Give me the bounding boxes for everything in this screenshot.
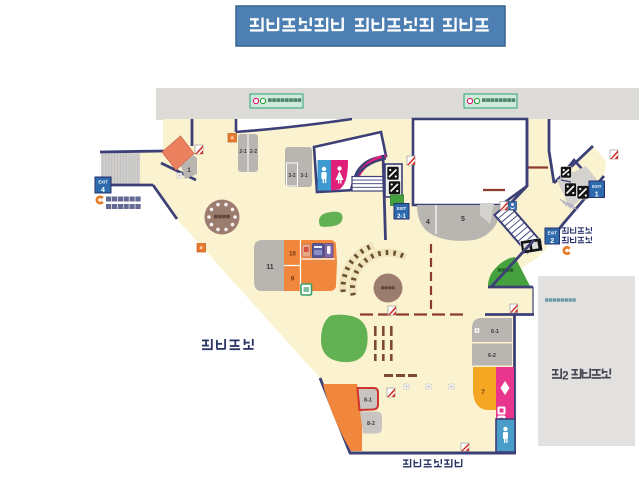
svg-text:2: 2 <box>550 238 554 245</box>
svg-text:5: 5 <box>461 216 465 223</box>
svg-text:1: 1 <box>595 191 599 198</box>
svg-text:6-2: 6-2 <box>488 353 496 359</box>
svg-text:10: 10 <box>289 252 296 258</box>
svg-text:6-1: 6-1 <box>491 329 499 335</box>
svg-text:EXIT: EXIT <box>592 184 602 189</box>
svg-text:2-2: 2-2 <box>250 149 257 155</box>
svg-text:3-1: 3-1 <box>300 173 307 179</box>
svg-text:1: 1 <box>187 167 191 174</box>
svg-text:4: 4 <box>101 187 105 194</box>
svg-text:8-1: 8-1 <box>364 398 372 404</box>
svg-text:EXIT: EXIT <box>98 180 108 185</box>
svg-text:11: 11 <box>266 264 274 271</box>
svg-text:7: 7 <box>481 389 485 396</box>
svg-text:8-2: 8-2 <box>367 421 375 427</box>
svg-text:4: 4 <box>426 219 430 226</box>
svg-text:EXIT: EXIT <box>548 231 558 236</box>
svg-text:3-2: 3-2 <box>288 173 295 179</box>
svg-text:2-1: 2-1 <box>239 149 246 155</box>
svg-text:2-1: 2-1 <box>397 214 406 220</box>
svg-text:EXIT: EXIT <box>397 206 407 211</box>
svg-text:2: 2 <box>562 369 569 383</box>
